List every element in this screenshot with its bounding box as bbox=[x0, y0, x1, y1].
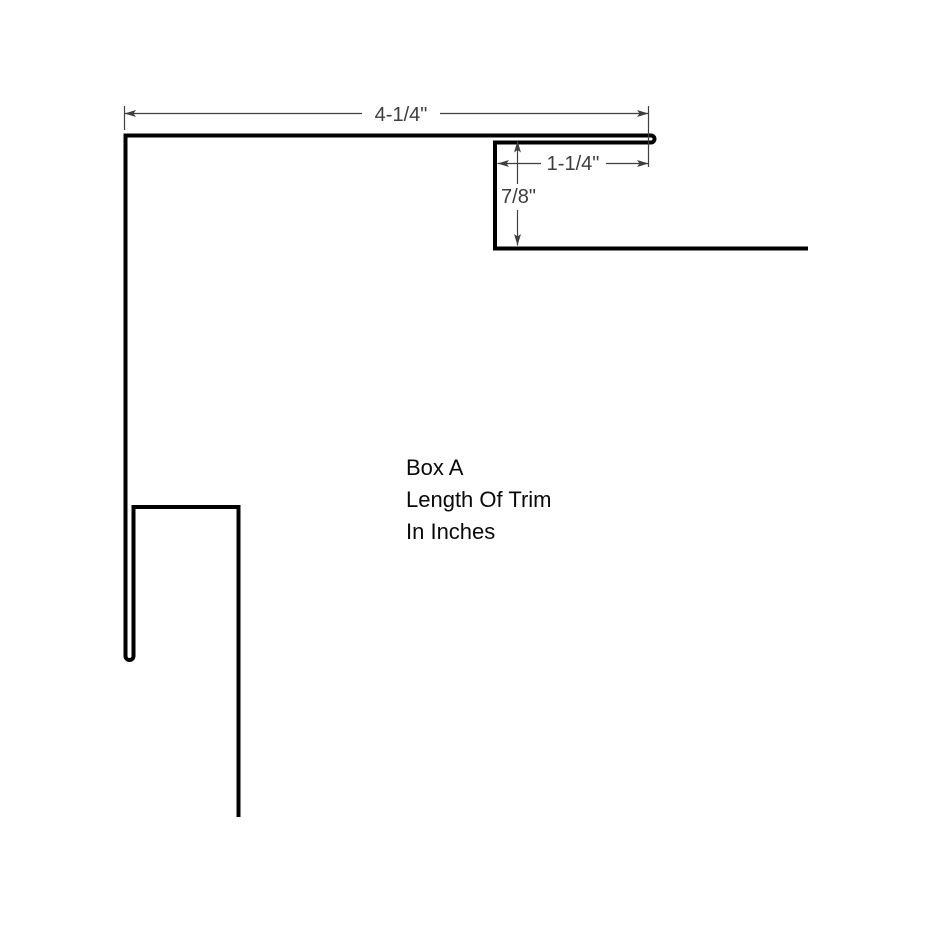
dim-label-hem-return-width: 1-1/4" bbox=[547, 153, 600, 175]
dim-label-step-height: 7/8" bbox=[501, 186, 536, 208]
trim-drawing-canvas: 4-1/4" 1-1/4" 7/8" Box A Length Of Trim … bbox=[0, 0, 933, 933]
trim-drawing-page: 4-1/4" 1-1/4" 7/8" Box A Length Of Trim … bbox=[0, 0, 933, 933]
dimension-hem-return-width: 1-1/4" bbox=[498, 152, 649, 175]
annotation-block: Box A Length Of Trim In Inches bbox=[406, 455, 552, 544]
dimension-step-height: 7/8" bbox=[500, 141, 538, 246]
dim-label-flange-width: 4-1/4" bbox=[375, 104, 428, 126]
annotation-line-3: In Inches bbox=[406, 519, 495, 544]
annotation-line-1: Box A bbox=[406, 455, 464, 480]
annotation-line-2: Length Of Trim bbox=[406, 487, 552, 512]
trim-profile-path bbox=[126, 136, 809, 818]
